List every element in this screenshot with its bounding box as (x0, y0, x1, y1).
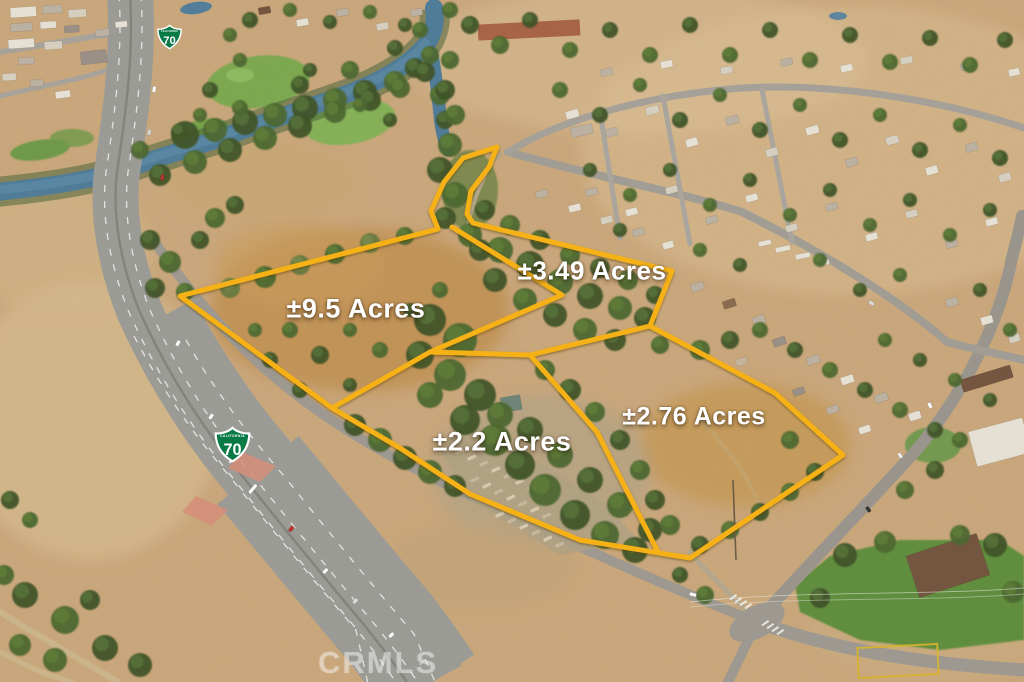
aerial-photo: ±9.5 Acres ±3.49 Acres ±2.2 Acres ±2.76 … (0, 0, 1024, 682)
photo-grain (0, 0, 1024, 682)
aerial-photo-scene (0, 0, 1024, 682)
